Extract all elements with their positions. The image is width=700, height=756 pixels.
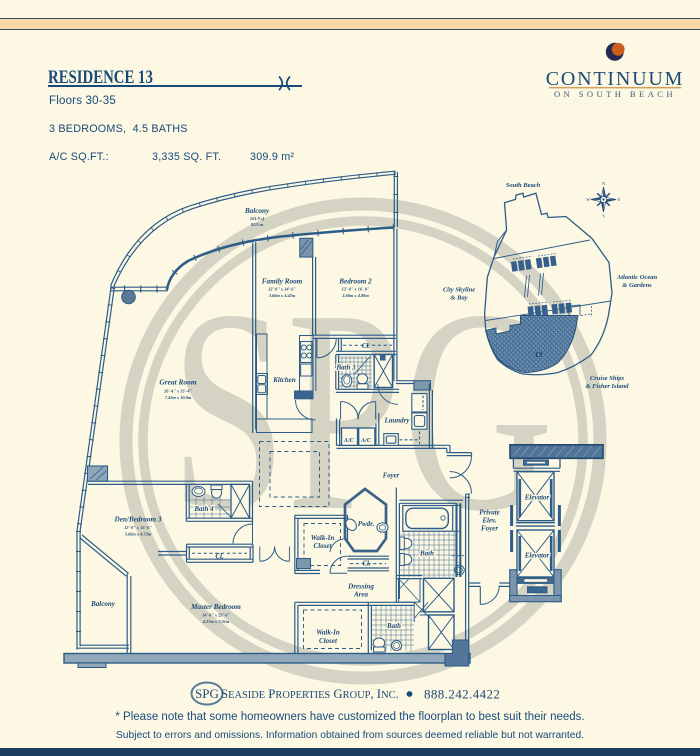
svg-text:Area: Area bbox=[353, 591, 369, 599]
svg-text:Walk-In: Walk-In bbox=[316, 629, 340, 637]
svg-text:Cruise Ships: Cruise Ships bbox=[590, 375, 625, 382]
svg-text:CONTINUUM: CONTINUUM bbox=[546, 68, 684, 90]
svg-text:Family Room: Family Room bbox=[262, 278, 303, 286]
svg-text:South Beach: South Beach bbox=[506, 182, 541, 189]
svg-text:S: S bbox=[602, 214, 605, 219]
svg-text:Atlantic Ocean: Atlantic Ocean bbox=[616, 274, 658, 281]
svg-text:Bath 3: Bath 3 bbox=[335, 364, 356, 372]
svg-text:Kitchen: Kitchen bbox=[272, 376, 296, 384]
svg-text:E: E bbox=[618, 197, 621, 202]
svg-text:Walk-In: Walk-In bbox=[311, 534, 335, 542]
svg-text:Bath: Bath bbox=[419, 550, 434, 558]
svg-text:Dressing: Dressing bbox=[347, 583, 374, 591]
svg-text:Pwdr.: Pwdr. bbox=[358, 520, 375, 528]
svg-text:A/C: A/C bbox=[360, 438, 372, 444]
svg-text:92.9 m: 92.9 m bbox=[251, 222, 264, 227]
svg-text:N: N bbox=[602, 181, 605, 186]
svg-text:Balcony: Balcony bbox=[244, 207, 270, 215]
svg-text:Balcony: Balcony bbox=[90, 600, 116, 608]
svg-text:& Gardens: & Gardens bbox=[622, 282, 652, 289]
svg-text:Closet: Closet bbox=[319, 637, 338, 645]
svg-text:3.66m x 4.88m: 3.66m x 4.88m bbox=[341, 293, 369, 298]
svg-text:Private: Private bbox=[479, 509, 500, 517]
svg-text:Cl.: Cl. bbox=[215, 553, 224, 561]
svg-text:Foyer: Foyer bbox=[481, 525, 498, 533]
svg-text:& Bay: & Bay bbox=[450, 295, 467, 302]
svg-text:SEASIDE PROPERTIES GROUP, INC.: SEASIDE PROPERTIES GROUP, INC. bbox=[221, 687, 399, 701]
svg-text:12'-0" x 16'-0": 12'-0" x 16'-0" bbox=[342, 287, 370, 292]
svg-text:SPG: SPG bbox=[195, 686, 219, 701]
svg-text:Bedroom 2: Bedroom 2 bbox=[338, 278, 372, 286]
svg-text:Foyer: Foyer bbox=[383, 473, 400, 480]
svg-text:Laundry: Laundry bbox=[384, 417, 411, 425]
svg-text:A/C: A/C bbox=[343, 438, 355, 444]
svg-text:26'-4" x 33'-4": 26'-4" x 33'-4" bbox=[163, 389, 192, 394]
svg-text:ON SOUTH BEACH: ON SOUTH BEACH bbox=[554, 89, 676, 99]
svg-text:888.242.4422: 888.242.4422 bbox=[424, 687, 500, 702]
svg-text:Bath 4: Bath 4 bbox=[193, 505, 214, 513]
svg-text:Cl.: Cl. bbox=[362, 560, 371, 568]
svg-text:12'-0" x 14'-6": 12'-0" x 14'-6" bbox=[268, 287, 296, 292]
svg-text:7.42m x 10.0m: 7.42m x 10.0m bbox=[165, 395, 192, 400]
svg-text:Great Room: Great Room bbox=[159, 378, 196, 387]
svg-text:City Skyline: City Skyline bbox=[443, 287, 475, 294]
svg-text:Den/Bedroom 3: Den/Bedroom 3 bbox=[114, 516, 162, 524]
svg-text:3.66m x 4.72m: 3.66m x 4.72m bbox=[124, 532, 152, 537]
svg-text:W: W bbox=[586, 197, 590, 202]
svg-text:13: 13 bbox=[535, 350, 543, 359]
svg-text:3.66m x 4.42m: 3.66m x 4.42m bbox=[268, 293, 296, 298]
svg-text:& Fisher Island: & Fisher Island bbox=[586, 383, 630, 390]
svg-text:12'-0" x 15'-6": 12'-0" x 15'-6" bbox=[124, 525, 152, 530]
svg-text:Elevator: Elevator bbox=[524, 494, 550, 502]
svg-text:14'-0" x 23'-0": 14'-0" x 23'-0" bbox=[202, 613, 230, 618]
svg-text:Bath: Bath bbox=[386, 622, 401, 630]
svg-text:Closet: Closet bbox=[314, 542, 333, 550]
svg-text:Master Bedroom: Master Bedroom bbox=[190, 603, 241, 611]
svg-text:Cl.: Cl. bbox=[362, 342, 371, 350]
svg-text:4.27m x 7.01m: 4.27m x 7.01m bbox=[202, 619, 230, 624]
svg-text:Elevator: Elevator bbox=[524, 552, 550, 560]
svg-text:161.9 sf: 161.9 sf bbox=[250, 216, 265, 221]
svg-text:Elev.: Elev. bbox=[481, 517, 497, 525]
